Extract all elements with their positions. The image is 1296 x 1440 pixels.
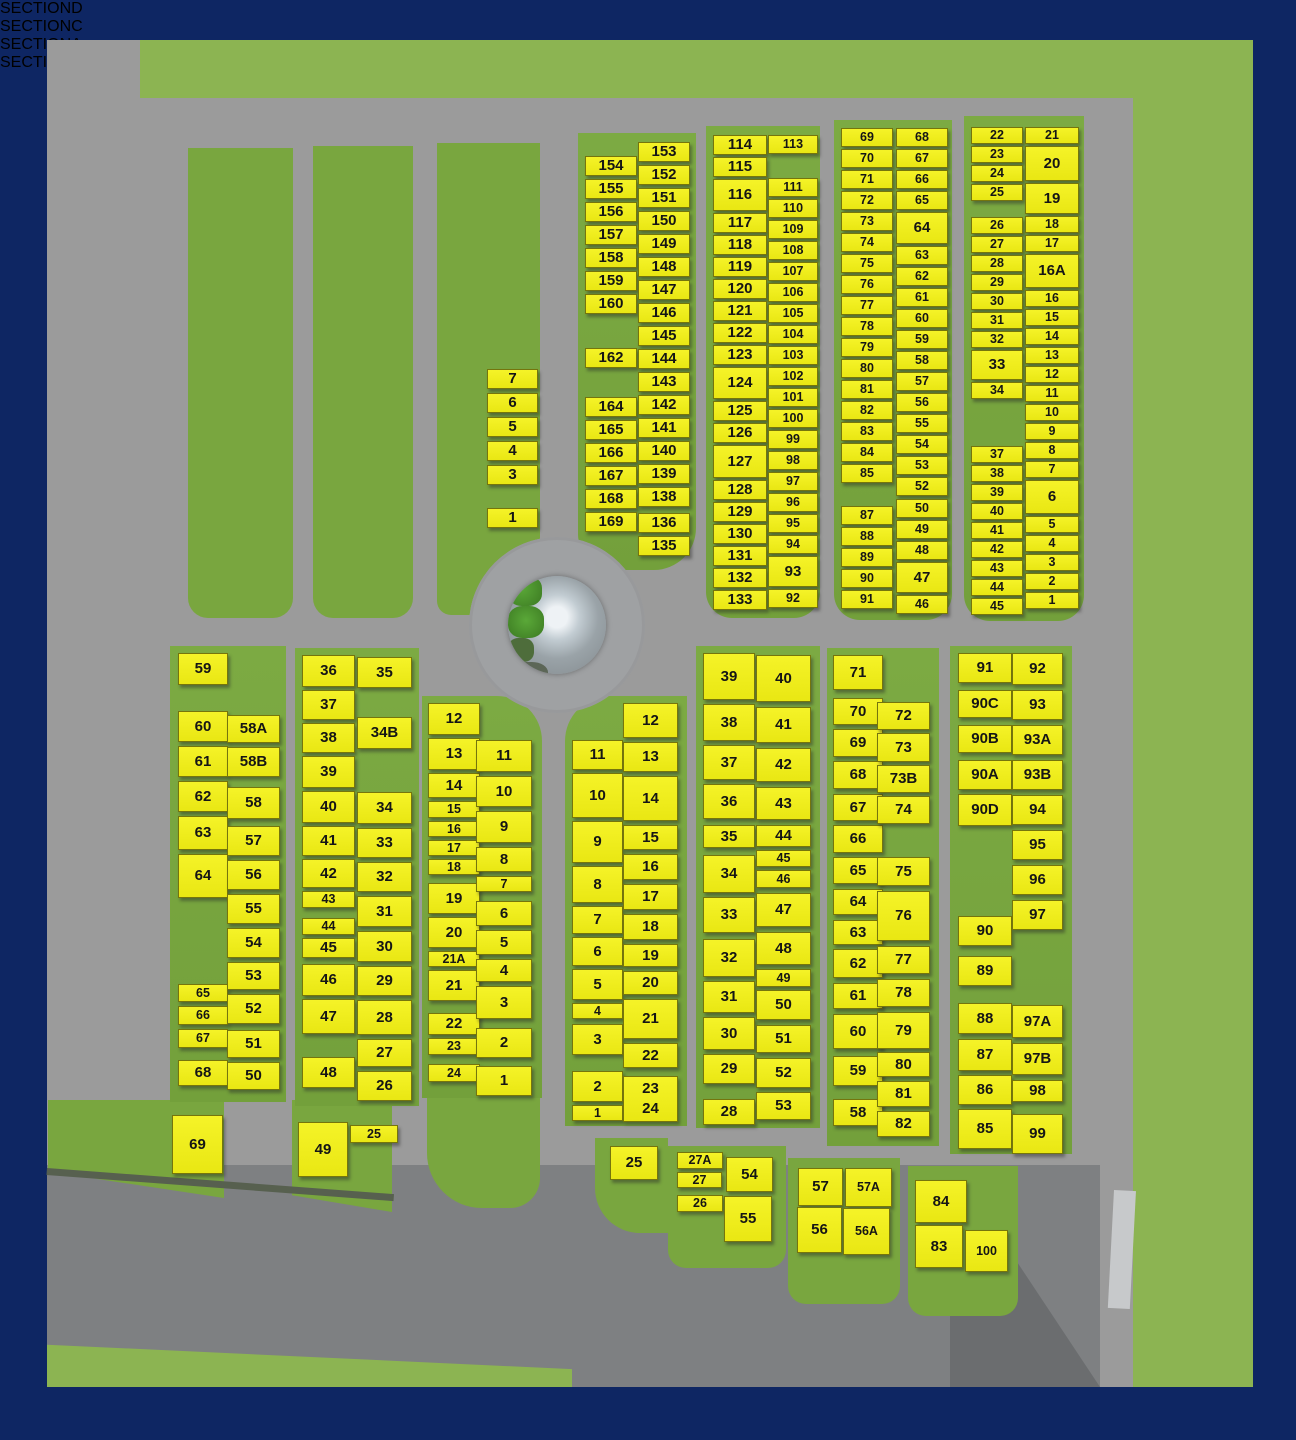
lot: 165 (585, 420, 637, 440)
lot: 2 (572, 1071, 623, 1102)
lot: 49 (298, 1122, 348, 1177)
lot: 26 (357, 1071, 412, 1101)
lot: 62 (896, 267, 948, 286)
lot: 39 (703, 653, 755, 700)
lot: 95 (1012, 830, 1063, 860)
lot: 64 (833, 889, 883, 915)
lot: 80 (841, 359, 893, 378)
lot: 142 (638, 395, 690, 415)
lot: 12 (428, 703, 480, 735)
lot: 138 (638, 487, 690, 507)
lot: 72 (841, 191, 893, 210)
lot: 63 (178, 816, 228, 850)
lot: 81 (841, 380, 893, 399)
lot: 59 (833, 1056, 883, 1086)
lot: 100 (965, 1230, 1008, 1272)
lot: 88 (958, 1003, 1012, 1034)
lot: 57 (896, 372, 948, 391)
lot: 153 (638, 142, 690, 162)
lot: 20 (428, 917, 480, 948)
lot: 58B (227, 747, 280, 777)
lot: 22 (623, 1043, 678, 1068)
lot: 13 (428, 738, 480, 770)
lot: 20 (1025, 146, 1079, 181)
lot: 38 (302, 723, 355, 753)
lot: 8 (1025, 442, 1079, 459)
lot: 60 (178, 711, 228, 742)
lot: 158 (585, 248, 637, 268)
lot: 39 (302, 756, 355, 788)
lot: 111 (768, 178, 818, 197)
lot: 67 (833, 794, 883, 821)
lot: 80 (877, 1052, 930, 1077)
lot: 10 (476, 776, 532, 807)
lot: 64 (178, 854, 228, 898)
lot: 65 (178, 984, 228, 1002)
lot: 29 (971, 274, 1023, 291)
lot: 43 (302, 891, 355, 908)
lot: 116 (713, 179, 767, 211)
lot: 126 (713, 423, 767, 443)
lot: 7 (487, 369, 538, 389)
lot: 3 (476, 986, 532, 1019)
lot: 57 (227, 826, 280, 856)
lot: 70 (841, 149, 893, 168)
section-label-d: SECTIOND (0, 0, 1296, 18)
lot: 18 (1025, 216, 1079, 233)
lot: 157 (585, 225, 637, 245)
lot: 69 (833, 729, 883, 757)
lot: 10 (572, 773, 623, 818)
lot: 56 (227, 860, 280, 890)
lot: 88 (841, 527, 893, 546)
lot: 17 (1025, 235, 1079, 252)
lot: 43 (756, 787, 811, 820)
lot: 107 (768, 262, 818, 281)
lot: 154 (585, 156, 637, 176)
lot: 124 (713, 367, 767, 399)
lot: 169 (585, 512, 637, 532)
lot: 16 (623, 854, 678, 880)
lot: 101 (768, 388, 818, 407)
lot: 93 (768, 556, 818, 587)
lot: 78 (877, 979, 930, 1007)
lot: 53 (756, 1092, 811, 1120)
lot: 18 (428, 859, 480, 875)
lot: 5 (476, 930, 532, 955)
lot: 36 (302, 655, 355, 687)
lot: 96 (1012, 865, 1063, 895)
lot: 31 (971, 312, 1023, 329)
lot: 27 (971, 236, 1023, 253)
lot: 104 (768, 325, 818, 344)
lot: 34 (703, 855, 755, 893)
lot: 128 (713, 480, 767, 500)
lot: 159 (585, 271, 637, 291)
lot: 21 (428, 970, 480, 1001)
lot: 48 (756, 932, 811, 965)
lot: 67 (178, 1029, 228, 1048)
lot: 13 (1025, 347, 1079, 364)
lot: 90B (958, 725, 1012, 753)
lot: 41 (756, 707, 811, 743)
lot: 12 (1025, 366, 1079, 383)
lot: 16 (428, 821, 480, 837)
tree-1 (40, 150, 200, 280)
lot: 31 (703, 981, 755, 1013)
lot: 82 (841, 401, 893, 420)
lot: 90C (958, 690, 1012, 718)
lot: 68 (833, 761, 883, 789)
lot: 23 (971, 146, 1023, 163)
lot: 140 (638, 441, 690, 461)
lot: 32 (357, 862, 412, 892)
lot: 44 (302, 918, 355, 935)
lot: 75 (841, 254, 893, 273)
lot: 8 (476, 847, 532, 872)
lot: 47 (896, 562, 948, 593)
lot: 22 (971, 127, 1023, 144)
lot: 65 (833, 857, 883, 884)
lot: 15 (428, 801, 480, 818)
lot: 90 (841, 569, 893, 588)
lot: 58 (227, 787, 280, 819)
lot: 85 (841, 464, 893, 483)
lot: 135 (638, 536, 690, 556)
lot: 105 (768, 304, 818, 323)
lot: 115 (713, 157, 767, 177)
hedge-row-3 (1068, 1228, 1116, 1285)
ground-grass-3 (313, 146, 413, 618)
lot: 42 (302, 859, 355, 888)
lot: 76 (841, 275, 893, 294)
tree-6 (1150, 330, 1218, 394)
lot: 40 (756, 655, 811, 702)
lot: 55 (227, 894, 280, 924)
section-letter: D (71, 0, 83, 17)
lot: 168 (585, 489, 637, 509)
hedge-row-1 (110, 238, 158, 1205)
lot: 60 (896, 309, 948, 328)
lot: 59 (896, 330, 948, 349)
lot: 84 (915, 1180, 967, 1223)
lot: 143 (638, 372, 690, 392)
roundabout-photo (508, 576, 606, 674)
lot: 91 (958, 653, 1012, 683)
lot: 45 (302, 938, 355, 958)
lot: 77 (877, 946, 930, 974)
lot: 127 (713, 445, 767, 478)
lot: 132 (713, 568, 767, 588)
lot: 25 (971, 184, 1023, 201)
lot: 39 (971, 484, 1023, 501)
lot: 23 (428, 1038, 480, 1055)
lot: 52 (227, 994, 280, 1024)
lot: 97A (1012, 1005, 1063, 1038)
lot: 47 (756, 893, 811, 927)
lot: 40 (971, 503, 1023, 520)
lot: 34 (971, 382, 1023, 399)
lot: 156 (585, 202, 637, 222)
lot: 17 (623, 884, 678, 910)
lot: 91 (841, 590, 893, 609)
lot: 65 (896, 191, 948, 210)
lot: 120 (713, 279, 767, 299)
lot: 73B (877, 765, 930, 793)
lot: 56 (797, 1207, 842, 1253)
lot: 1 (487, 508, 538, 528)
site-plan-frame: 1541551561571581591601621641651661671681… (0, 0, 1296, 1440)
lot: 139 (638, 464, 690, 484)
lot: 98 (1012, 1080, 1063, 1102)
lot: 6 (487, 393, 538, 413)
tree-8 (1052, 460, 1264, 688)
lot: 93 (1012, 690, 1063, 720)
lot: 21 (1025, 127, 1079, 144)
lot: 19 (623, 944, 678, 967)
lot: 68 (896, 128, 948, 147)
lot: 166 (585, 443, 637, 463)
lot: 44 (971, 579, 1023, 596)
lot: 74 (877, 796, 930, 824)
lot: 54 (896, 435, 948, 454)
lot: 52 (896, 477, 948, 496)
lot: 94 (1012, 795, 1063, 825)
lot: 9 (572, 821, 623, 863)
lot: 19 (428, 883, 480, 914)
lot: 123 (713, 345, 767, 365)
lot: 33 (703, 897, 755, 933)
lot: 45 (756, 850, 811, 867)
lot: 2 (476, 1028, 532, 1058)
lot: 46 (896, 595, 948, 614)
hedge-row-4 (1080, 1360, 1252, 1387)
lot: 66 (178, 1006, 228, 1025)
lot: 55 (724, 1196, 772, 1242)
lot: 21A (428, 951, 480, 967)
lot: 100 (768, 409, 818, 428)
lot: 69 (841, 128, 893, 147)
lot: 53 (227, 962, 280, 990)
lot: 11 (572, 740, 623, 770)
lot: 64 (896, 212, 948, 244)
lot: 74 (841, 233, 893, 252)
lot: 54 (726, 1157, 773, 1192)
lot: 84 (841, 443, 893, 462)
lot: 160 (585, 294, 637, 314)
lot: 62 (833, 949, 883, 978)
lot: 14 (428, 773, 480, 798)
lot: 45 (971, 598, 1023, 615)
lot: 6 (572, 937, 623, 966)
lot: 52 (756, 1058, 811, 1088)
lot: 99 (768, 430, 818, 449)
shrine-photo-green-right (508, 606, 544, 638)
lot: 18 (623, 914, 678, 940)
lot: 149 (638, 234, 690, 254)
lot: 41 (971, 522, 1023, 539)
lot: 106 (768, 283, 818, 302)
lot: 58 (896, 351, 948, 370)
lot: 73 (877, 733, 930, 762)
lot: 71 (833, 655, 883, 690)
lot: 71 (841, 170, 893, 189)
lot: 28 (971, 255, 1023, 272)
lot: 1 (572, 1105, 623, 1121)
lot: 14 (623, 776, 678, 821)
lot: 125 (713, 401, 767, 421)
lot: 4 (476, 959, 532, 982)
lot: 81 (877, 1081, 930, 1107)
lot: 130 (713, 524, 767, 544)
lot: 89 (841, 548, 893, 567)
lot: 148 (638, 257, 690, 277)
lot: 24 (428, 1064, 480, 1082)
lot: 90 (958, 916, 1012, 946)
lot: 13 (623, 742, 678, 772)
lot: 29 (703, 1054, 755, 1084)
lot: 133 (713, 590, 767, 610)
lot: 58 (833, 1099, 883, 1126)
lot: 61 (896, 288, 948, 307)
lot: 94 (768, 535, 818, 554)
lot: 162 (585, 348, 637, 368)
lot: 73 (841, 212, 893, 231)
lot: 9 (1025, 423, 1079, 440)
lot: 70 (833, 698, 883, 725)
lot: 49 (896, 520, 948, 539)
lot: 90D (958, 794, 1012, 826)
lot: 145 (638, 326, 690, 346)
lot: 26 (677, 1195, 723, 1212)
lot: 83 (841, 422, 893, 441)
lot: 58A (227, 715, 280, 743)
lot: 5 (572, 969, 623, 1000)
lot: 19 (1025, 183, 1079, 214)
lot: 108 (768, 241, 818, 260)
lot: 37 (703, 745, 755, 780)
lot: 75 (877, 857, 930, 886)
lot: 99 (1012, 1114, 1063, 1154)
lot: 8 (572, 866, 623, 903)
lot: 4 (487, 441, 538, 461)
lot: 1 (476, 1066, 532, 1096)
lot: 30 (357, 931, 412, 962)
lot: 66 (896, 170, 948, 189)
lot: 118 (713, 235, 767, 255)
lot: 6 (476, 901, 532, 926)
lot: 164 (585, 397, 637, 417)
lot: 147 (638, 280, 690, 300)
lot: 96 (768, 493, 818, 512)
lot: 3 (487, 465, 538, 485)
lot: 78 (841, 317, 893, 336)
lot: 103 (768, 346, 818, 365)
lot: 27A (677, 1152, 723, 1169)
lot: 47 (302, 999, 355, 1034)
lot: 113 (768, 135, 818, 154)
lot: 11 (476, 740, 532, 772)
lot: 85 (958, 1109, 1012, 1149)
lot: 34B (357, 717, 412, 749)
lot: 16 (1025, 290, 1079, 307)
lot: 92 (768, 589, 818, 608)
ground-grass-9 (427, 1098, 540, 1208)
lot: 97 (768, 472, 818, 491)
lot: 15 (623, 825, 678, 850)
lot: 24 (971, 165, 1023, 182)
lot: 7 (476, 876, 532, 892)
lot: 28 (357, 1000, 412, 1035)
lot: 79 (841, 338, 893, 357)
lot: 89 (958, 956, 1012, 986)
lot: 36 (703, 784, 755, 819)
lot: 114 (713, 135, 767, 155)
lot: 42 (971, 541, 1023, 558)
lot: 16A (1025, 254, 1079, 288)
lot: 62 (178, 781, 228, 812)
lot: 79 (877, 1012, 930, 1049)
lot: 61 (833, 983, 883, 1009)
lot: 87 (958, 1039, 1012, 1071)
lot: 42 (756, 748, 811, 782)
lot: 93A (1012, 725, 1063, 755)
lot: 68 (178, 1060, 228, 1086)
lot: 30 (703, 1017, 755, 1050)
lot: 77 (841, 296, 893, 315)
lot: 3 (572, 1024, 623, 1055)
lot: 35 (357, 657, 412, 688)
lot: 97B (1012, 1043, 1063, 1075)
lot: 43 (971, 560, 1023, 577)
lot: 49 (756, 969, 811, 987)
lot: 141 (638, 418, 690, 438)
lot: 40 (302, 791, 355, 823)
lot: 50 (896, 499, 948, 518)
lot: 37 (971, 446, 1023, 463)
lot: 38 (971, 465, 1023, 482)
lot: 95 (768, 514, 818, 533)
lot: 167 (585, 466, 637, 486)
lot: 56A (843, 1208, 890, 1255)
lot: 72 (877, 702, 930, 730)
lot: 98 (768, 451, 818, 470)
lot: 46 (302, 964, 355, 996)
lot: 22 (428, 1013, 480, 1035)
lot: 41 (302, 826, 355, 856)
lot: 119 (713, 257, 767, 277)
lot: 10 (1025, 404, 1079, 421)
lot: 34 (357, 792, 412, 824)
lot: 61 (178, 746, 228, 777)
lot: 66 (833, 825, 883, 853)
lot: 5 (487, 417, 538, 437)
lot: 32 (703, 939, 755, 977)
lot: 27 (677, 1172, 722, 1188)
lot: 86 (958, 1075, 1012, 1105)
lot: 151 (638, 188, 690, 208)
lot: 146 (638, 303, 690, 323)
lot: 69 (172, 1115, 223, 1174)
section-word: SECTION (0, 0, 71, 17)
lot: 129 (713, 502, 767, 522)
lot: 54 (227, 928, 280, 958)
lot: 53 (896, 456, 948, 475)
lot: 48 (302, 1057, 355, 1088)
lot: 131 (713, 546, 767, 566)
lot: 59 (178, 653, 228, 685)
lot: 63 (896, 246, 948, 265)
